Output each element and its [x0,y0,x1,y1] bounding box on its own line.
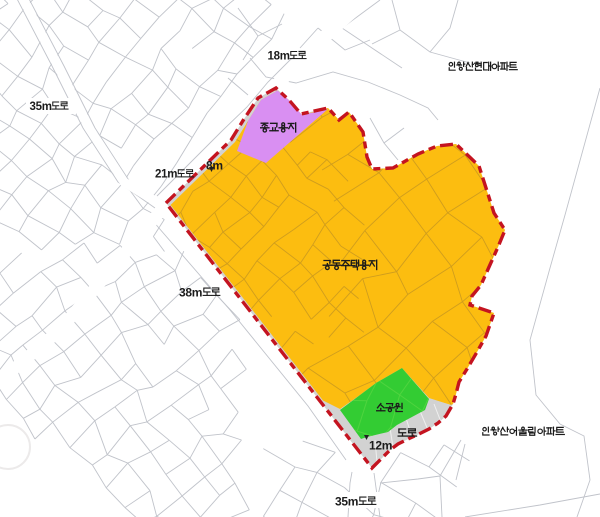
svg-text:38m: 38m [179,286,202,300]
svg-text:8m: 8m [206,159,223,173]
svg-text:12m: 12m [369,439,392,453]
svg-text:35m: 35m [30,101,52,113]
svg-text:18m: 18m [268,51,290,63]
svg-text:21m: 21m [155,169,177,181]
svg-text:35m: 35m [335,495,358,509]
